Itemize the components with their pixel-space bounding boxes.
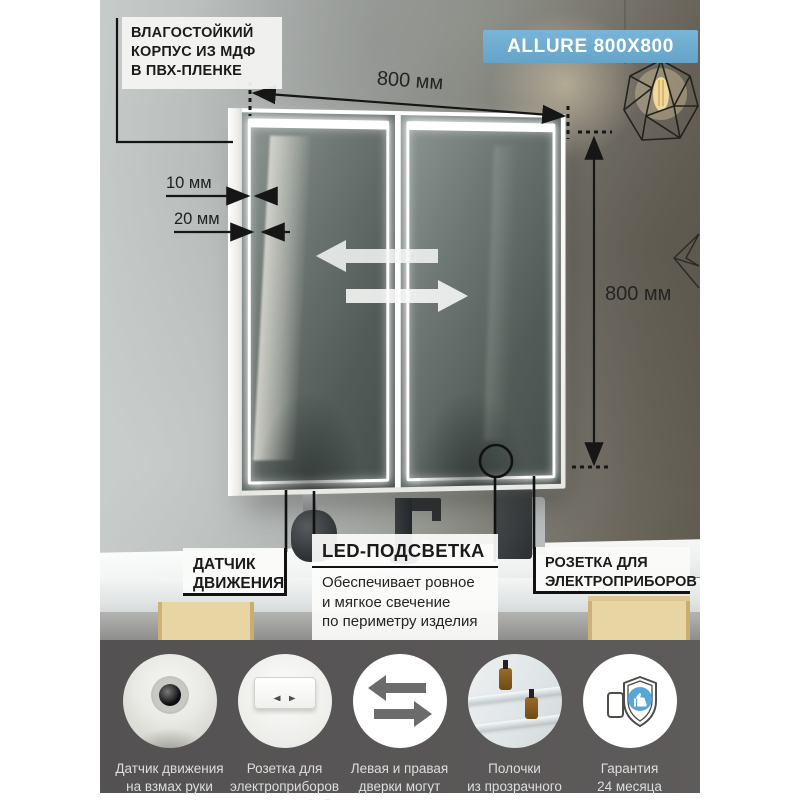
moisture-line: КОРПУС ИЗ МДФ (131, 43, 274, 62)
moisture-line: В ПВХ-ПЛЕНКЕ (131, 62, 274, 81)
edge-10-label: 10 мм (166, 174, 212, 193)
feature-glass-shelves: Полочки из прозрачного стекла (457, 654, 572, 800)
dark-dispenser (496, 487, 532, 559)
product-infographic: ВЛАГОСТОЙКИЙ КОРПУС ИЗ МДФ В ПВХ-ПЛЕНКЕ … (0, 0, 800, 800)
feature-band: Датчик движения на взмах руки Розетка дл… (100, 640, 700, 793)
feature-caption: Гарантия 24 месяца (597, 760, 662, 796)
led-description: Обеспечивает ровное и мягкое свечение по… (312, 568, 498, 640)
led-title: LED-ПОДСВЕТКА (312, 534, 498, 566)
power-socket-icon (238, 654, 332, 748)
edge-20-label: 20 мм (174, 210, 220, 229)
feature-power-socket: Розетка для электроприборов мощностью 2 … (227, 654, 342, 800)
feature-caption: Розетка для электроприборов мощностью 2 … (230, 760, 339, 800)
moisture-line: ВЛАГОСТОЙКИЙ (131, 24, 274, 43)
perfume-bottle-cap (303, 492, 317, 512)
pendant-lamp (622, 58, 700, 146)
model-badge: ALLURE 800X800 (483, 30, 698, 63)
vanity-leg-left (158, 602, 254, 640)
feature-motion-sensor: Датчик движения на взмах руки (112, 654, 227, 796)
socket-line: ЭЛЕКТРОПРИБОРОВ (545, 573, 690, 592)
swap-arrows-graphic (316, 240, 468, 312)
motion-sensor-line: ДАТЧИК (193, 555, 284, 574)
motion-sensor-callout: ДАТЧИК ДВИЖЕНИЯ (183, 548, 287, 596)
feature-caption: Левая и правая дверки могут меняться мес… (342, 760, 457, 800)
glass-shelves-icon (468, 654, 562, 748)
height-dimension-label: 800 мм (605, 283, 695, 306)
moisture-callout: ВЛАГОСТОЙКИЙ КОРПУС ИЗ МДФ В ПВХ-ПЛЕНКЕ (122, 17, 282, 89)
feature-swap-doors: Левая и правая дверки могут меняться мес… (342, 654, 457, 800)
feature-caption: Полочки из прозрачного стекла (467, 760, 562, 800)
led-callout: LED-ПОДСВЕТКА Обеспечивает ровное и мягк… (312, 534, 498, 640)
width-dimension-label: 800 мм (339, 65, 480, 98)
vanity-leg-right (588, 596, 690, 640)
socket-face (254, 677, 316, 709)
swap-doors-icon (353, 654, 447, 748)
sensor-lens (159, 684, 181, 706)
feature-caption: Датчик движения на взмах руки (115, 760, 223, 796)
motion-sensor-line: ДВИЖЕНИЯ (193, 574, 284, 593)
cabinet-side-panel (228, 108, 242, 496)
socket-line: РОЗЕТКА ДЛЯ (545, 554, 690, 573)
product-photo: ВЛАГОСТОЙКИЙ КОРПУС ИЗ МДФ В ПВХ-ПЛЕНКЕ … (100, 0, 700, 640)
feature-warranty: Гарантия 24 месяца (572, 654, 687, 796)
warranty-icon (583, 654, 677, 748)
motion-sensor-icon (123, 654, 217, 748)
faucet-tip (432, 509, 441, 521)
socket-callout: РОЗЕТКА ДЛЯ ЭЛЕКТРОПРИБОРОВ (533, 547, 690, 594)
